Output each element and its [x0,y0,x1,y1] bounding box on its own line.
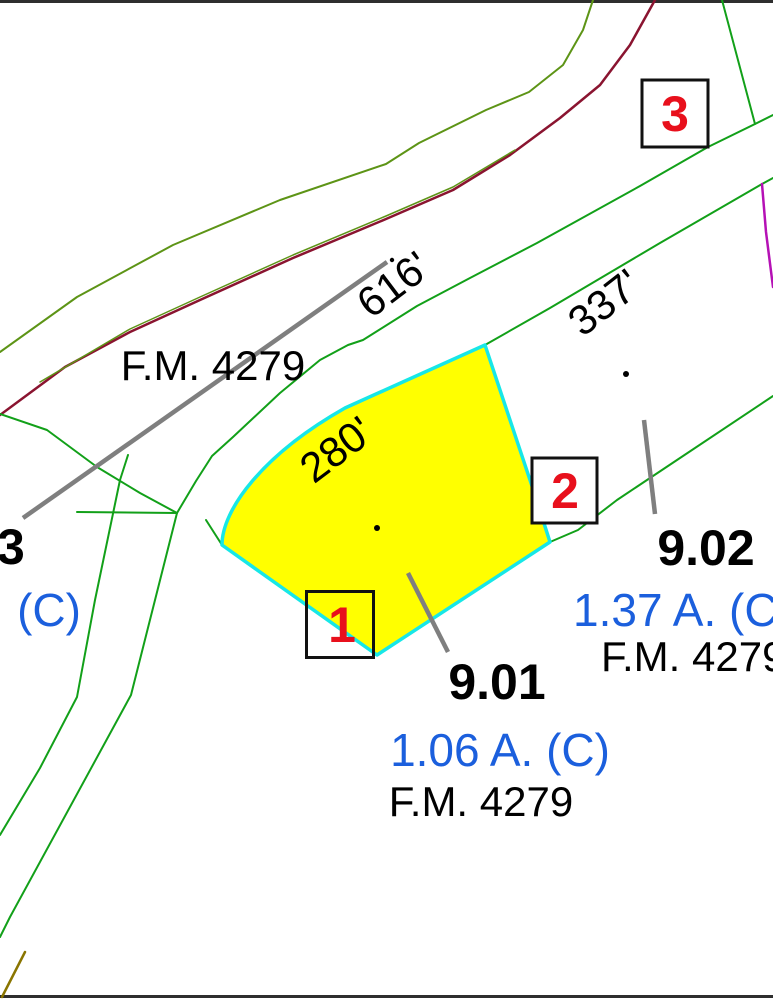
map-svg: 1 2 3 F.M. 4279 616' 337' 280' 9.01 1.06… [0,0,773,1000]
parcel-boundary-top-line [722,0,755,124]
parcel-901-acreage: 1.06 A. (C) [390,724,610,776]
parcel-west-stub-line [206,520,222,545]
boundary-purple-line [762,184,773,287]
road-curve-edge-line [0,0,593,352]
parcel-9-01-highlight[interactable] [222,345,550,655]
parcel-902-road: F.M. 4279 [601,633,773,680]
parcel-902-number: 9.02 [657,520,754,576]
leader-902 [644,420,655,514]
parcel-901-road: F.M. 4279 [389,778,573,825]
parcel-left-acreage-partial: (C) [17,584,81,636]
marker-3-label: 3 [661,86,689,142]
parcel-902-acreage: 1.37 A. (C) [573,584,773,636]
parcel-map-canvas: 1 2 3 F.M. 4279 616' 337' 280' 9.01 1.06… [0,0,773,1000]
olive-boundary-line [2,952,25,997]
road-centerline-maroon [0,0,655,415]
dimension-616: 616' [348,242,439,327]
row-edge-ne-lower-line [485,178,773,345]
marker-2-label: 2 [551,463,579,519]
marker-1-label: 1 [328,597,356,653]
road-label-fm4279-left: F.M. 4279 [121,342,305,389]
parcel-901-centroid-dot [374,525,380,531]
parcel-902-centroid-dot [623,371,629,377]
parcel-901-number: 9.01 [448,654,545,710]
dimension-337: 337' [559,260,649,345]
parcel-left-number-partial: 3 [0,519,25,575]
junction-cross-segment [77,512,177,513]
